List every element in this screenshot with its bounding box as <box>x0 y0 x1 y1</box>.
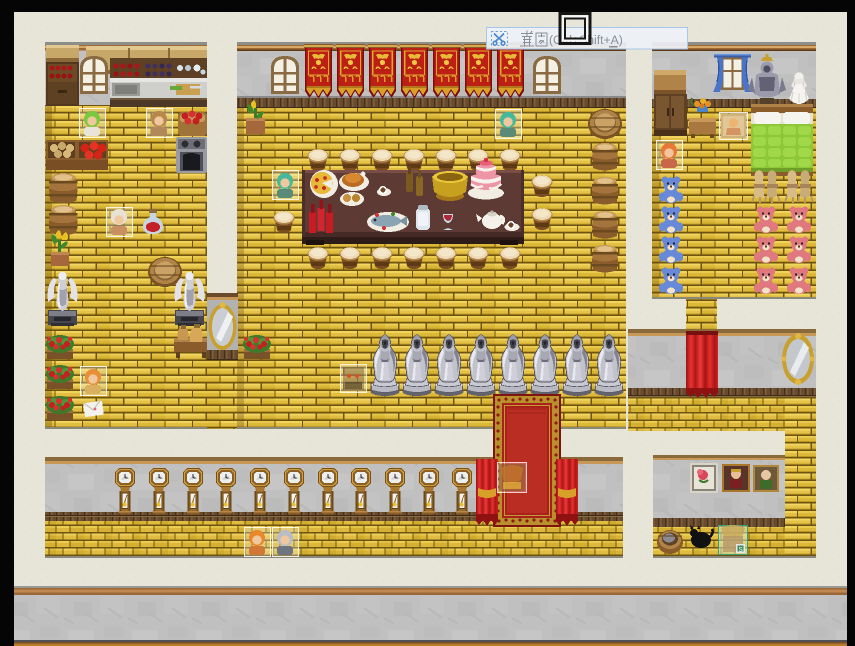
svg-text:S: S <box>739 547 743 554</box>
